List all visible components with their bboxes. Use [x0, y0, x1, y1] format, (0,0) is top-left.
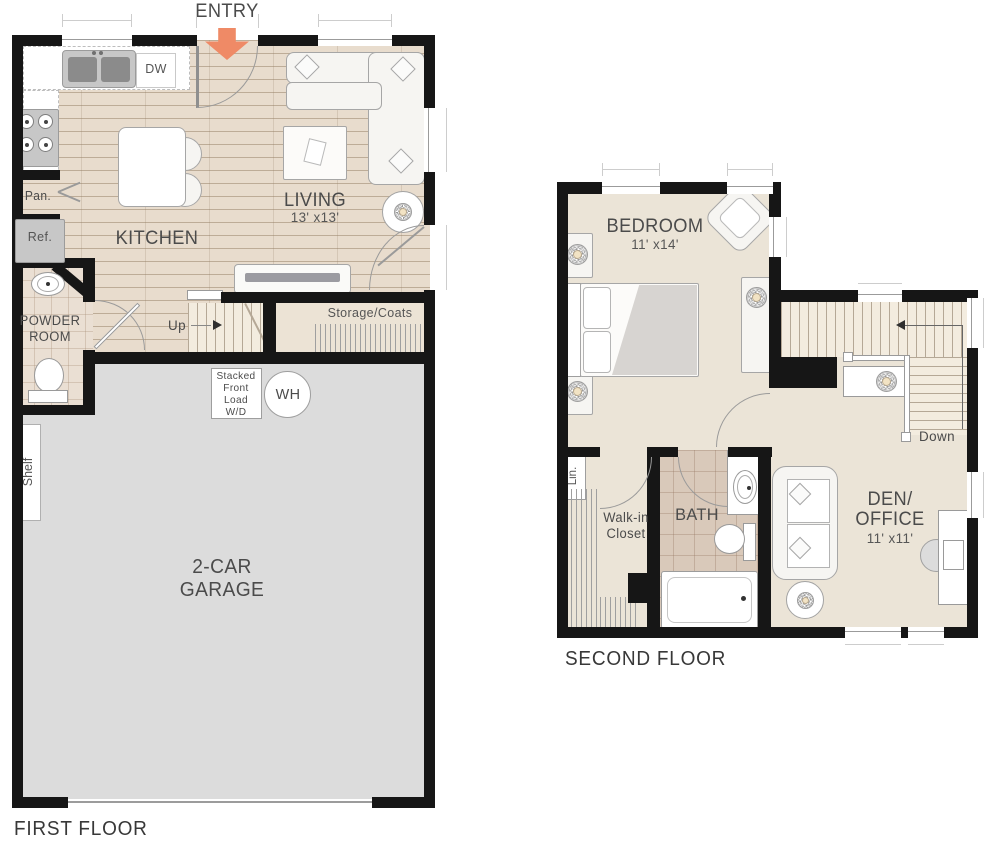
floor-plan-canvas: DW Stacked Front Load W/D	[0, 0, 991, 844]
pantry-label: Pan.	[25, 189, 51, 203]
f2-top-wall-b	[660, 182, 727, 194]
bedroom-right-window	[769, 217, 781, 257]
tick-f2-win1-a	[602, 163, 603, 176]
stair-window	[858, 290, 902, 302]
burner-dot-4	[44, 143, 48, 147]
bath-den-wall	[758, 447, 771, 638]
stair-console-lamp	[876, 371, 897, 392]
f1-left-wall	[12, 35, 23, 808]
tick-f2-rwall-2	[983, 472, 984, 518]
stairs-upper-run	[781, 302, 967, 357]
garage-top-wall	[83, 352, 435, 364]
faucet-dot-2	[99, 51, 103, 55]
tick-f1-entry-b	[258, 14, 259, 28]
kitchen-table	[118, 127, 186, 207]
storage-label: Storage/Coats	[328, 306, 413, 321]
storage-top-wall	[221, 292, 425, 303]
f2-right-wall-a	[967, 290, 978, 298]
tick-f2-rwall-1	[983, 298, 984, 348]
living-right-window	[424, 108, 435, 172]
garage-label-line2: GARAGE	[180, 579, 264, 602]
tick-f2-win2-b	[772, 163, 773, 176]
down-path-vertical	[962, 325, 963, 429]
tick-f2-win2-a	[727, 163, 728, 176]
burner-dot-1	[25, 120, 29, 124]
dishwasher-label: DW	[145, 62, 167, 77]
storage-hanging-clothes	[315, 324, 425, 354]
f2-right-wall-c	[967, 518, 978, 638]
washer-dryer-line2: Front	[223, 382, 248, 394]
f1-right-wall-a	[424, 35, 435, 108]
f2-left-wall	[557, 182, 568, 638]
sofa-seat	[286, 82, 382, 110]
powder-right-wall-upper	[83, 258, 95, 302]
bed-headboard	[566, 283, 581, 377]
den-loveseat-cushion-1	[787, 479, 830, 523]
closet-stub-wall	[628, 573, 652, 603]
washer-dryer-line3: Load	[224, 394, 248, 406]
second-floor-plan: Lin.	[460, 0, 991, 844]
f1-bottom-wall-a	[12, 797, 68, 808]
kitchen-label: KITCHEN	[116, 228, 199, 250]
second-floor-title: SECOND FLOOR	[565, 648, 726, 671]
tick-f1-rwin-a	[446, 108, 447, 172]
den-right-window-2	[967, 472, 978, 518]
den-side-table-lamp	[797, 592, 814, 609]
burner-dot-3	[25, 143, 29, 147]
floor-lamp	[394, 203, 412, 221]
closet-label-line1: Walk-in	[603, 510, 648, 526]
up-arrow-icon	[213, 320, 222, 330]
powder-sink-drain	[46, 282, 50, 286]
entry-label: ENTRY	[195, 1, 258, 23]
tick-f2-win1-h	[602, 169, 660, 170]
f1-top-wall-c	[258, 35, 318, 46]
tick-f2-bwin2	[908, 644, 944, 645]
f2-right-wall-b	[967, 348, 978, 472]
bed-pillow-1	[583, 287, 611, 329]
f2-right-block-top-wall-a	[781, 290, 858, 302]
bath-toilet-tank	[743, 523, 756, 561]
refrigerator-label: Ref.	[28, 230, 52, 245]
bath-label: BATH	[675, 505, 719, 525]
tick-f1-win2-b	[391, 14, 392, 27]
stairs-up-label: Up	[168, 317, 186, 333]
media-console-bar	[245, 273, 340, 282]
f2-bottom-wall-a	[557, 627, 845, 638]
powder-label-line2: ROOM	[29, 329, 71, 345]
garage-label-line1: 2-CAR	[192, 556, 252, 579]
living-top-window	[318, 35, 392, 46]
stair-newel-2	[901, 432, 911, 442]
stair-rail-vertical	[904, 355, 910, 435]
bath-sink-drain	[747, 486, 751, 490]
bath-toilet-bowl	[714, 524, 745, 554]
tick-f1-win2-a	[318, 14, 319, 27]
first-floor-title: FIRST FLOOR	[14, 818, 148, 841]
bedroom-dims: 11' x14'	[631, 236, 679, 252]
water-heater-label: WH	[276, 386, 301, 403]
stair-storage-divider	[263, 303, 276, 352]
stairs-lower-run	[908, 357, 967, 435]
bedroom-right-wall-b	[769, 257, 781, 357]
first-floor-plan: DW Stacked Front Load W/D	[0, 0, 460, 844]
stair-hall-stub-wall	[769, 357, 837, 388]
bedroom-bottom-wall-a	[557, 447, 600, 457]
tick-f2-rwin	[786, 217, 787, 257]
stair-newel-1	[843, 352, 853, 362]
pantry-top-wall	[12, 170, 60, 180]
f1-right-wall-c	[424, 290, 435, 808]
den-bottom-window-1	[845, 627, 901, 638]
f1-right-wall-b	[424, 172, 435, 225]
powder-label-line1: POWDER	[20, 313, 81, 329]
linen-label: Lin.	[567, 467, 579, 486]
bedroom-window-1	[602, 182, 660, 194]
closet-label-line2: Closet	[606, 526, 645, 542]
den-desk-laptop	[943, 540, 964, 570]
garage-door	[68, 799, 372, 806]
nightstand-bottom-lamp	[567, 381, 588, 402]
toilet-bowl	[34, 358, 64, 393]
dresser-lamp	[746, 287, 767, 308]
stair-newel-rail	[187, 290, 223, 300]
faucet-dot-1	[92, 51, 96, 55]
den-bottom-window-2	[908, 627, 944, 638]
down-label: Down	[919, 428, 955, 444]
up-connector-line	[191, 325, 211, 326]
washer-dryer-line1: Stacked	[216, 370, 255, 382]
tick-f2-bwin1	[845, 644, 901, 645]
closet-bath-wall	[647, 447, 660, 638]
tick-f1-win1-a	[62, 14, 63, 27]
burner-dot-2	[44, 120, 48, 124]
tick-f1-entry-a	[196, 14, 197, 28]
f2-bottom-wall-c	[944, 627, 978, 638]
bathtub-inner	[667, 577, 752, 623]
nightstand-top-lamp	[567, 244, 588, 265]
stairs-up-treads	[188, 303, 265, 352]
tick-f1-win2-h	[318, 20, 392, 21]
tick-f2-win1-b	[659, 163, 660, 176]
powder-bottom-wall	[12, 405, 93, 415]
living-dims: 13' x13'	[291, 209, 340, 225]
bed-pillow-2	[583, 331, 611, 373]
tick-f1-rdoor-a	[446, 225, 447, 290]
bathtub-drain	[741, 596, 746, 601]
down-arrow-icon	[896, 320, 905, 330]
den-label-line2: OFFICE	[855, 509, 924, 531]
den-label-line1: DEN/	[867, 489, 912, 511]
f1-top-wall-b	[132, 35, 197, 46]
f2-bottom-wall-b	[901, 627, 908, 638]
den-right-window-1	[967, 298, 978, 348]
den-dims: 11' x11'	[867, 530, 914, 546]
washer-dryer-line4: W/D	[226, 406, 247, 418]
tick-f2-stairwin	[858, 283, 902, 284]
bedroom-label: BEDROOM	[607, 216, 704, 238]
kitchen-window	[62, 35, 132, 46]
garage-shelf-label: Shelf	[21, 458, 35, 487]
tick-f1-win1-b	[131, 14, 132, 27]
stair-rail-horizontal	[848, 355, 906, 361]
toilet-tank	[28, 390, 68, 403]
sink-basin-right	[101, 57, 130, 82]
sink-basin-left	[68, 57, 97, 82]
f1-bottom-wall-b	[372, 797, 435, 808]
tick-f1-win1-h	[62, 20, 132, 21]
down-path-horizontal	[905, 325, 963, 326]
bedroom-window-2	[727, 182, 773, 194]
tick-f2-win2-h	[727, 169, 773, 170]
